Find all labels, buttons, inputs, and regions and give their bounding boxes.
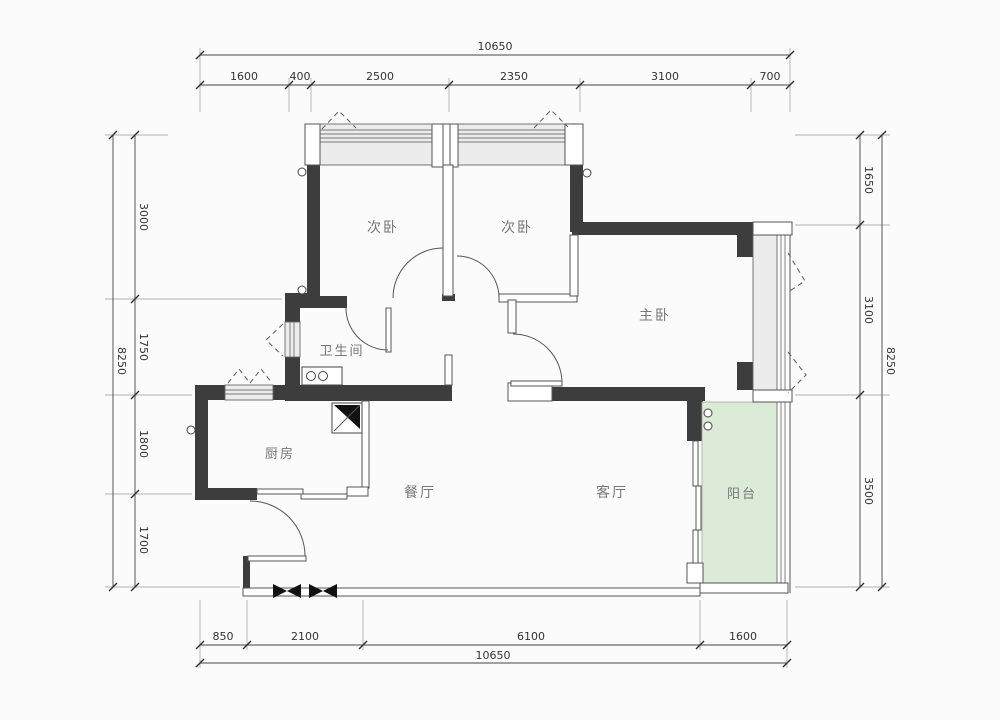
dim-right-seg: 3100 xyxy=(862,296,875,324)
wall xyxy=(737,362,753,390)
wall-thin xyxy=(362,401,369,488)
wall-thin xyxy=(687,563,703,583)
casement-opening-mark xyxy=(228,369,250,383)
floor-plan-page: 次卧 次卧 主卧 卫生间 厨房 餐厅 客厅 阳台 10650 1600 400 … xyxy=(0,0,1000,720)
casement-opening-mark xyxy=(788,253,805,292)
window-end-cap xyxy=(565,124,583,165)
dimension-top: 10650 1600 400 2500 2350 3100 700 xyxy=(196,40,794,112)
master-window-sill xyxy=(753,235,777,390)
dim-top-seg: 700 xyxy=(760,70,781,83)
room-label-balcony: 阳台 xyxy=(727,487,757,502)
dim-bottom-total: 10650 xyxy=(476,649,511,662)
wall xyxy=(285,357,300,387)
casement-opening-mark xyxy=(788,352,806,393)
window-mullion xyxy=(432,124,458,167)
room-label-kitchen: 厨房 xyxy=(265,446,295,462)
wall xyxy=(572,222,753,235)
wall xyxy=(307,296,347,308)
dim-top-seg: 2350 xyxy=(500,70,528,83)
dim-right-seg: 1650 xyxy=(862,166,875,194)
bay-top-band xyxy=(753,222,792,235)
load-bearing-walls xyxy=(195,165,753,596)
wall-thin xyxy=(347,487,368,496)
room-labels: 次卧 次卧 主卧 卫生间 厨房 餐厅 客厅 阳台 xyxy=(265,220,757,502)
floor-plan-svg: 次卧 次卧 主卧 卫生间 厨房 餐厅 客厅 阳台 10650 1600 400 … xyxy=(0,0,1000,720)
bathroom-door-leaf xyxy=(386,308,391,352)
wall xyxy=(737,222,753,257)
dim-right-total: 8250 xyxy=(884,347,897,375)
room-label-dining: 餐厅 xyxy=(404,485,436,501)
kitchen-sliding-door-panel xyxy=(301,494,347,499)
dimension-left: 3000 1750 1800 1700 8250 xyxy=(105,131,282,591)
dim-bottom-seg: 6100 xyxy=(517,630,545,643)
entry-door-swing xyxy=(250,501,305,556)
wall xyxy=(195,488,257,500)
floor-drain-icon xyxy=(704,422,712,430)
master-door-swing xyxy=(513,334,562,383)
entry-door-leaf xyxy=(248,556,306,561)
wall xyxy=(285,308,300,322)
room-label-bedroom-right: 次卧 xyxy=(501,220,533,236)
kitchen-sliding-door-panel xyxy=(257,489,303,494)
casement-opening-mark xyxy=(266,324,283,356)
wall xyxy=(687,401,703,441)
basin-icon xyxy=(307,372,316,381)
bathroom-window xyxy=(285,322,300,357)
balcony-sliding-door-panel xyxy=(696,486,701,530)
dim-top-seg: 3100 xyxy=(651,70,679,83)
master-door-leaf xyxy=(511,381,562,386)
balcony-sliding-door-panel xyxy=(693,441,698,486)
basin-icon xyxy=(319,372,328,381)
dim-left-total: 8250 xyxy=(115,347,128,375)
dim-left-seg: 1750 xyxy=(137,333,150,361)
bedroom-right-door-swing xyxy=(457,256,499,298)
dimension-right: 1650 3100 3500 8250 xyxy=(795,131,897,591)
wall-thin xyxy=(570,235,578,296)
pipe-marker-icon xyxy=(583,169,591,177)
pipe-marker-icon xyxy=(187,426,195,434)
wall xyxy=(285,385,452,401)
balcony-south-wall xyxy=(700,583,788,593)
dim-top-seg: 400 xyxy=(290,70,311,83)
room-label-bedroom-left: 次卧 xyxy=(367,220,399,236)
wall xyxy=(195,385,208,500)
dim-left-seg: 1800 xyxy=(137,430,150,458)
room-label-living: 客厅 xyxy=(596,484,628,501)
floor-drain-icon xyxy=(704,409,712,417)
room-label-bathroom: 卫生间 xyxy=(319,344,364,359)
bedroom-left-door-swing xyxy=(393,248,443,298)
dimension-bottom: 850 2100 6100 1600 10650 xyxy=(196,600,791,668)
dim-left-seg: 3000 xyxy=(137,203,150,231)
wall-thin xyxy=(445,355,452,385)
dim-top-seg: 2500 xyxy=(366,70,394,83)
dim-bottom-seg: 2100 xyxy=(291,630,319,643)
bay-sill-band xyxy=(753,390,792,402)
pipe-marker-icon xyxy=(298,286,306,294)
dim-bottom-seg: 850 xyxy=(213,630,234,643)
dim-top-seg: 1600 xyxy=(230,70,258,83)
bedroom-partition xyxy=(443,165,453,296)
wall xyxy=(570,165,583,232)
room-label-master-bedroom: 主卧 xyxy=(639,308,671,324)
dim-left-seg: 1700 xyxy=(137,526,150,554)
casement-opening-mark xyxy=(250,369,272,383)
window-end-cap xyxy=(305,124,320,165)
balcony-sliding-door-panel xyxy=(693,530,698,563)
dim-bottom-seg: 1600 xyxy=(729,630,757,643)
pipe-marker-icon xyxy=(298,168,306,176)
kitchen-window xyxy=(225,385,273,400)
wall-thin xyxy=(508,300,516,333)
dim-top-total: 10650 xyxy=(478,40,513,53)
wall xyxy=(550,387,705,401)
wall xyxy=(307,165,320,300)
dim-right-seg: 3500 xyxy=(862,477,875,505)
